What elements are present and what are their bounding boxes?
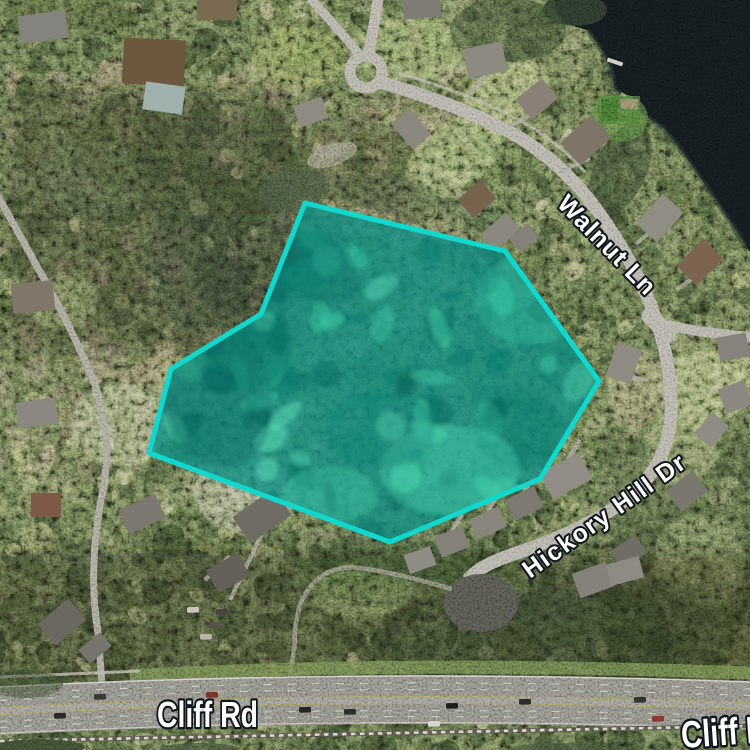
svg-text:Cliff Rd: Cliff Rd (157, 694, 258, 735)
svg-text:Cliff Rd: Cliff Rd (680, 708, 750, 750)
